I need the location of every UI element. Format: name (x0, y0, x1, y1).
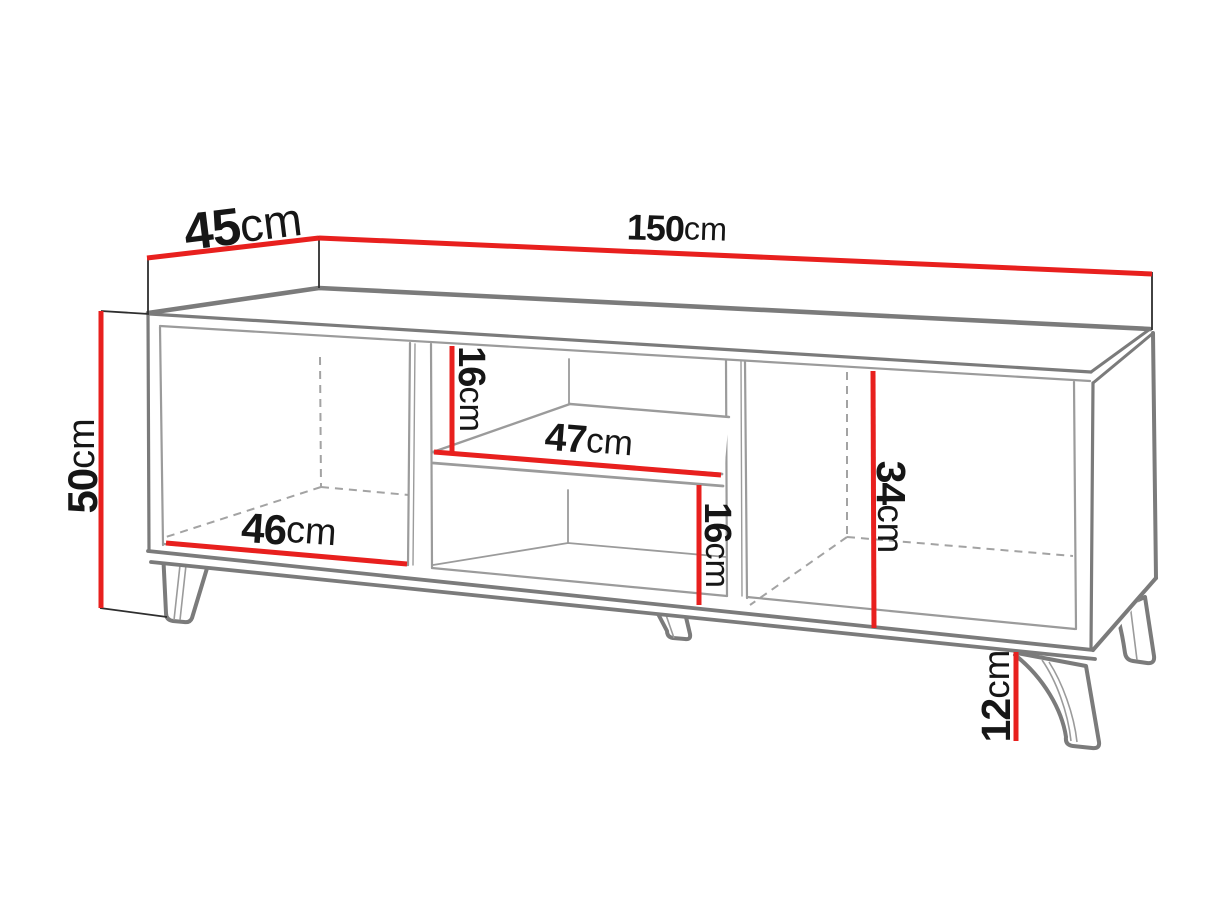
dimension-label-right-compartment-height: 34cm (868, 461, 914, 554)
dimension-label-height: 50cm (59, 418, 106, 513)
dimension-label-leg-height: 12cm (973, 650, 1019, 743)
left-divider-right-edge (431, 344, 432, 568)
right-divider-detail (741, 361, 742, 596)
left-outer-edge (148, 313, 149, 551)
front-right-leg (1015, 653, 1099, 748)
dimension-label-lower-niche-height: 16cm (696, 502, 738, 588)
dimension-line-width-150 (319, 238, 1152, 274)
dimension-label-upper-niche-height: 16cm (450, 346, 492, 432)
dimension-label-depth: 45cm (181, 190, 305, 262)
dimension-label-shelf-width: 47cm (543, 415, 634, 465)
height-extension-top (101, 311, 149, 314)
dimension-label-left-compartment-width: 46cm (240, 503, 338, 557)
dimension-label-width: 150cm (626, 206, 728, 250)
front-right-edge (1091, 383, 1093, 649)
height-extension-bottom (100, 608, 167, 617)
dimension-diagram: 45cm 150cm 50cm 46cm 47cm 16cm 16cm 34cm… (0, 0, 1224, 918)
